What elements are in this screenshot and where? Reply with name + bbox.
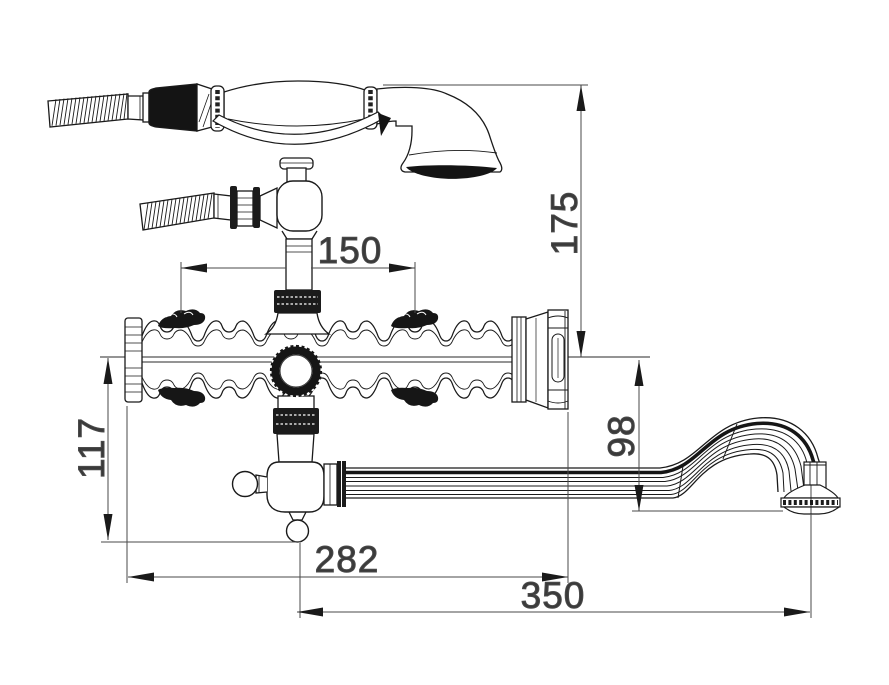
faucet-dimension-diagram: 150 175 117 98 282 350 (0, 0, 889, 685)
bottom-finial (287, 520, 309, 542)
dimension-height-98: 98 (601, 360, 783, 511)
dimension-label-282: 282 (315, 539, 380, 580)
lever-ball (233, 472, 258, 497)
ornament-knot (391, 388, 438, 407)
dimension-label-175: 175 (544, 191, 585, 256)
dimension-label-117: 117 (71, 417, 112, 479)
spout (345, 418, 840, 514)
valve-body (267, 462, 324, 512)
spray-face (406, 165, 497, 179)
grip-black-cone (149, 84, 197, 131)
diverter-ring (270, 345, 322, 397)
body-left-cap (125, 318, 142, 402)
dimension-label-98: 98 (601, 414, 642, 457)
shower-holder-tee (274, 158, 322, 313)
shower-spray-head (377, 87, 502, 178)
knurled-band (273, 408, 319, 434)
valve-and-handle (233, 408, 347, 542)
faucet-body (100, 309, 650, 409)
tee-ball (277, 181, 322, 231)
ornament-knot (158, 309, 205, 328)
dimension-label-350: 350 (521, 575, 586, 616)
faucet-fixture (48, 81, 840, 542)
knurled-nut (274, 290, 321, 313)
shower-hose-lower (140, 186, 277, 230)
hand-shower-grip (128, 84, 212, 131)
ornament-knot (158, 388, 205, 407)
spout-nozzle (781, 485, 840, 514)
dimension-label-150: 150 (318, 230, 383, 271)
technical-drawing-page: 150 175 117 98 282 350 (0, 0, 889, 685)
shower-hose-upper (48, 93, 128, 127)
